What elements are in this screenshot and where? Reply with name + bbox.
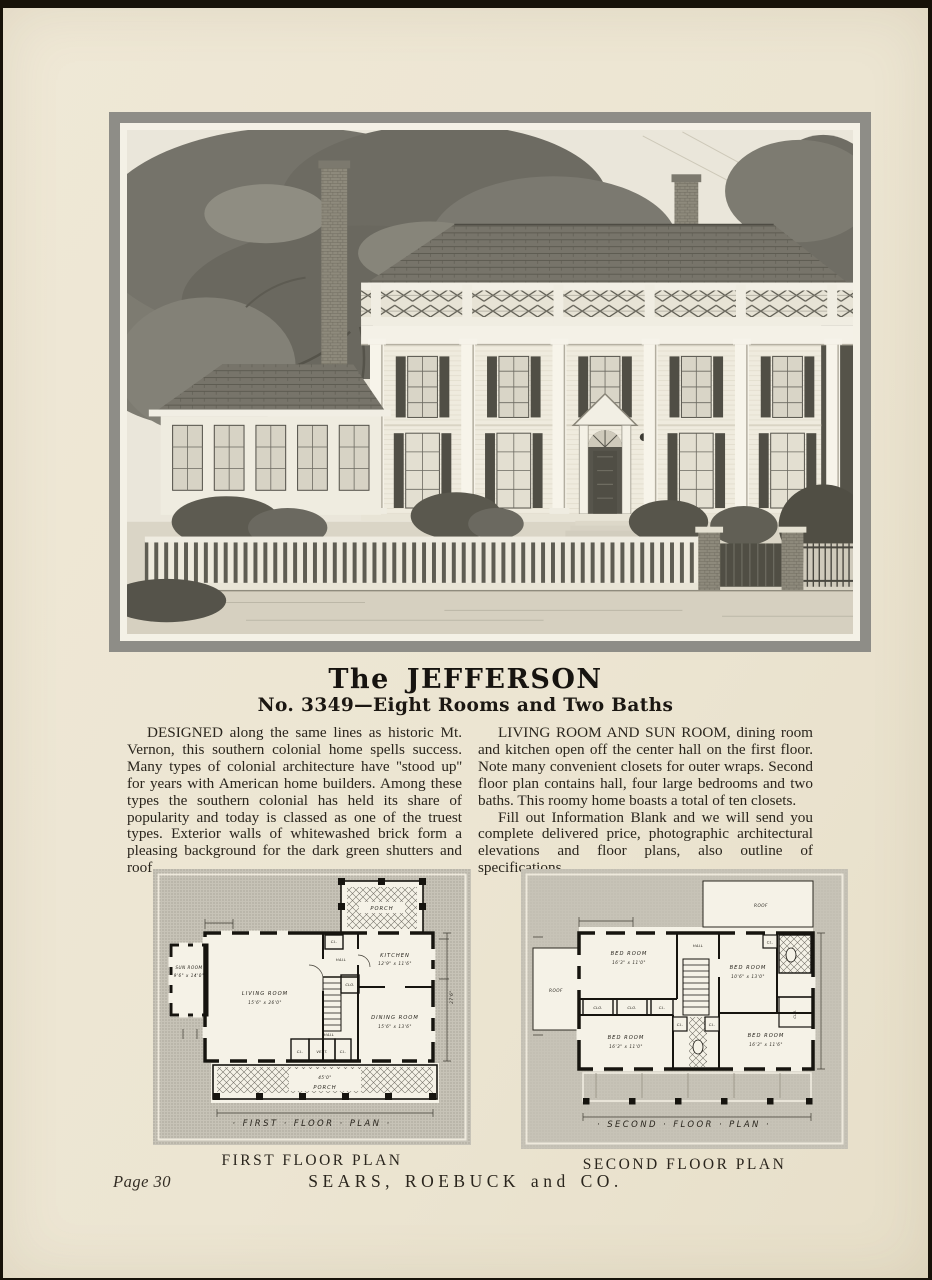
house-illustration — [127, 130, 853, 634]
hall-label: HALL — [324, 1033, 334, 1037]
rear-porch-label: PORCH — [370, 906, 393, 912]
bed2-dim: 10'6" x 13'0" — [731, 974, 765, 979]
page-number: Page 30 — [113, 1172, 171, 1192]
house-illustration-frame — [109, 112, 871, 652]
plan1-script-label: · FIRST · FLOOR · PLAN · — [232, 1119, 391, 1129]
house-illustration-mat — [120, 123, 860, 641]
cl-top2-label: CL. — [767, 941, 773, 945]
dining-room-label: DINING ROOM — [371, 1015, 419, 1021]
kitchen-label: KITCHEN — [380, 953, 410, 959]
entablature — [361, 326, 853, 345]
bed4-dim: 16'3" x 11'6" — [749, 1042, 783, 1047]
first-floor-caption: FIRST FLOOR PLAN — [153, 1152, 471, 1170]
first-floor-plan: PORCH SUN R — [153, 869, 471, 1145]
living-room-label: LIVING ROOM — [242, 991, 288, 997]
bed3-label: BED ROOM — [608, 1035, 645, 1041]
chimney-left — [318, 161, 350, 375]
roof-balustrade — [361, 283, 853, 326]
paragraph-designed: DESIGNED along the same lines as histori… — [127, 725, 462, 877]
page-title: The JEFFERSON — [3, 664, 928, 695]
porch-width-dim: 45'0" — [318, 1075, 332, 1080]
bed3-dim: 16'3" x 11'0" — [609, 1044, 643, 1049]
kitchen-dim: 12'9" x 11'6" — [378, 961, 412, 966]
living-room-dim: 15'6" x 26'0" — [248, 1000, 282, 1005]
plan2-script-label: · SECOND · FLOOR · PLAN · — [597, 1120, 771, 1130]
description-right-column: LIVING ROOM AND SUN ROOM, dining room an… — [478, 725, 813, 877]
sun-room-dim: 9'6" x 14'0" — [174, 973, 205, 978]
paragraph-information-blank: Fill out Information Blank and we will s… — [478, 810, 813, 878]
roof-right-label: ROOF — [754, 903, 768, 908]
second-floor-plan-block: ROOF ROOF — [521, 869, 848, 1174]
cl-ba-label: CL. — [677, 1023, 683, 1027]
catalog-page: The JEFFERSON No. 3349—Eight Rooms and T… — [3, 8, 928, 1278]
bed1-dim: 16'3" x 11'0" — [612, 960, 646, 965]
catalog-scan: { "colors": { "paper": "#ece5d2", "frame… — [0, 0, 932, 1280]
clo-a-label: CLO. — [593, 1006, 602, 1010]
dining-room-dim: 15'6" x 13'6" — [378, 1024, 412, 1029]
rear-hall-label: HALL — [336, 958, 346, 962]
vest-label: VEST. — [316, 1050, 327, 1054]
first-floor-plan-block: PORCH SUN R — [153, 869, 471, 1170]
roof-left-label: ROOF — [549, 988, 563, 993]
cl-top-label: CL. — [331, 940, 337, 944]
bed2-label: BED ROOM — [730, 965, 767, 971]
cl-row-label: CL. — [659, 1006, 665, 1010]
cl-left-label: CL. — [297, 1050, 303, 1054]
front-porch-label: PORCH — [313, 1085, 336, 1091]
bed1-label: BED ROOM — [611, 951, 648, 957]
second-floor-plan: ROOF ROOF — [521, 869, 848, 1149]
clo-right-label: CLO. — [793, 1009, 797, 1018]
cl-bb-label: CL. — [709, 1023, 715, 1027]
page-subtitle: No. 3349—Eight Rooms and Two Baths — [3, 695, 928, 716]
paragraph-living-room: LIVING ROOM AND SUN ROOM, dining room an… — [478, 725, 813, 810]
sun-room-label: SUN ROOM — [175, 965, 202, 970]
cl-right-label: CL. — [340, 1050, 346, 1054]
clo-b-label: CLO. — [627, 1006, 636, 1010]
description-columns: DESIGNED along the same lines as histori… — [127, 725, 813, 877]
plan1-depth-dim: 27'6" — [449, 990, 454, 1004]
clo-label: CLO. — [345, 983, 354, 987]
bed4-label: BED ROOM — [748, 1033, 785, 1039]
description-left-column: DESIGNED along the same lines as histori… — [127, 725, 462, 877]
hall2-label: HALL — [693, 944, 703, 948]
